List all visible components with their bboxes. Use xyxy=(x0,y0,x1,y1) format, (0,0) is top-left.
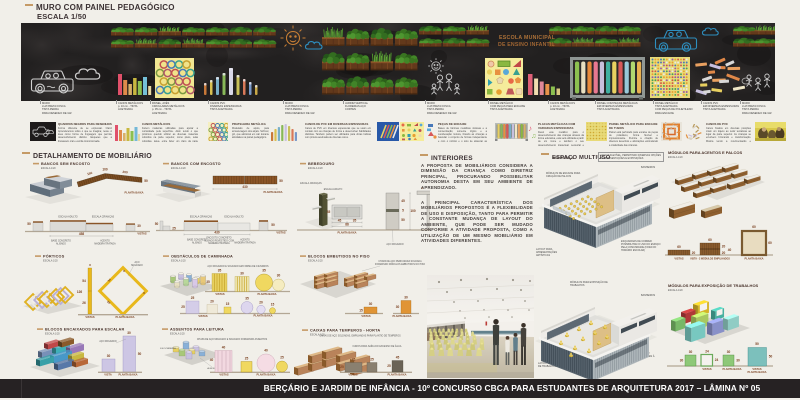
svg-text:45: 45 xyxy=(396,356,400,360)
svg-text:PLANTA BAIXA: PLANTA BAIXA xyxy=(387,373,406,377)
svg-text:45: 45 xyxy=(338,218,342,222)
svg-text:PLANTA BAIXA: PLANTA BAIXA xyxy=(257,292,276,296)
svg-text:AÇO MOLDADO E SOLDADO EM FORMA: AÇO MOLDADO E SOLDADO EM FORMA DE CILIND… xyxy=(207,265,269,268)
svg-text:20: 20 xyxy=(692,251,696,255)
svg-text:PLANTA BAIXA: PLANTA BAIXA xyxy=(337,231,356,235)
svg-text:FORMANDO MÓDULOS EMBUTIDOS NO: FORMANDO MÓDULOS EMBUTIDOS NO PISO xyxy=(375,263,425,266)
svg-text:54: 54 xyxy=(82,279,86,283)
svg-text:50: 50 xyxy=(138,352,142,356)
svg-text:126: 126 xyxy=(77,290,83,294)
svg-text:25: 25 xyxy=(181,305,185,309)
svg-text:ESCALA 1/20: ESCALA 1/20 xyxy=(171,167,186,170)
svg-text:26: 26 xyxy=(82,301,86,305)
svg-text:CAIXAS DE AÇO SOLDADAS, EMPILH: CAIXAS DE AÇO SOLDADAS, EMPILHADAS PARA … xyxy=(319,335,401,338)
svg-text:OBSTÁCULOS DE CAMINHADA: OBSTÁCULOS DE CAMINHADA xyxy=(171,254,233,259)
svg-text:25: 25 xyxy=(280,356,284,360)
svg-text:♪: ♪ xyxy=(528,124,532,133)
svg-text:ALISADO: ALISADO xyxy=(56,242,66,245)
svg-text:30: 30 xyxy=(127,331,131,335)
svg-text:MADEIRA TRATADA: MADEIRA TRATADA xyxy=(94,242,116,245)
svg-text:25: 25 xyxy=(191,296,195,300)
svg-text:VISTAS: VISTAS xyxy=(674,257,683,261)
svg-text:40: 40 xyxy=(210,358,214,362)
svg-text:35: 35 xyxy=(245,297,249,301)
svg-text:CHAPA DE AÇO MOLDADO E SOLDADO: CHAPA DE AÇO MOLDADO E SOLDADO FORMANDO … xyxy=(197,338,268,341)
svg-text:30: 30 xyxy=(107,354,111,358)
svg-text:BLOCOS ENCAIXADOS PARA ESCALAR: BLOCOS ENCAIXADOS PARA ESCALAR xyxy=(45,328,124,332)
svg-text:50: 50 xyxy=(27,222,31,226)
svg-text:PLANTA BAIXA: PLANTA BAIXA xyxy=(253,314,272,318)
svg-text:50: 50 xyxy=(401,218,405,222)
svg-text:430: 430 xyxy=(242,185,248,189)
svg-text:ESCALA ADULTO: ESCALA ADULTO xyxy=(324,188,343,191)
svg-text:26: 26 xyxy=(106,300,111,305)
svg-text:40: 40 xyxy=(264,349,268,353)
svg-text:30: 30 xyxy=(396,305,400,309)
svg-text:ESCALA 1/20: ESCALA 1/20 xyxy=(41,167,56,170)
svg-text:AÇO: AÇO xyxy=(135,261,140,264)
svg-text:VISTAS: VISTAS xyxy=(219,373,228,377)
svg-text:VISTAS: VISTAS xyxy=(276,231,285,235)
svg-text:ESCALA ADULTO: ESCALA ADULTO xyxy=(224,216,243,219)
svg-text:ESCALA 1/20: ESCALA 1/20 xyxy=(170,333,185,336)
svg-text:ESCALA 1/20: ESCALA 1/20 xyxy=(45,333,60,336)
svg-text:30: 30 xyxy=(680,359,684,363)
svg-text:20: 20 xyxy=(722,245,726,249)
svg-text:ESCALA CRIANÇAS: ESCALA CRIANÇAS xyxy=(190,216,213,219)
svg-text:ACENTO: ACENTO xyxy=(240,239,250,242)
svg-text:88: 88 xyxy=(345,222,349,226)
svg-text:♫: ♫ xyxy=(531,133,536,139)
svg-text:CHAPA DE AÇO PERFURADA SOLDADA: CHAPA DE AÇO PERFURADA SOLDADA xyxy=(378,260,422,263)
svg-text:ACENTO: ACENTO xyxy=(100,240,110,243)
svg-text:PLANTA BAIXA: PLANTA BAIXA xyxy=(722,367,741,371)
svg-text:25: 25 xyxy=(387,364,391,368)
svg-text:ESCALA CRIANÇAS: ESCALA CRIANÇAS xyxy=(300,182,322,185)
svg-text:24: 24 xyxy=(715,358,719,362)
svg-text:100: 100 xyxy=(102,168,108,172)
svg-text:50: 50 xyxy=(769,355,773,359)
svg-text:50: 50 xyxy=(755,342,759,346)
svg-text:30: 30 xyxy=(369,302,373,306)
svg-text:50: 50 xyxy=(271,223,275,227)
svg-text:ASSENTOS PARA LEITURA: ASSENTOS PARA LEITURA xyxy=(170,328,224,332)
svg-text:CAIXAS PARA TEMPEROS - HORTA: CAIXAS PARA TEMPEROS - HORTA xyxy=(310,329,380,333)
svg-text:25: 25 xyxy=(340,365,344,369)
svg-text:PLANTA BAIXA: PLANTA BAIXA xyxy=(392,314,411,318)
svg-text:MADEIRA TRATADA: MADEIRA TRATADA xyxy=(208,242,230,245)
svg-text:ALISADO: ALISADO xyxy=(192,241,202,244)
svg-text:VISTAS: VISTAS xyxy=(137,232,146,236)
svg-text:5: 5 xyxy=(402,209,404,213)
svg-text:ESCUTANEIRA: ESCUTANEIRA xyxy=(160,347,176,350)
svg-text:15: 15 xyxy=(359,309,363,313)
svg-text:50: 50 xyxy=(144,179,148,183)
svg-text:200: 200 xyxy=(122,170,128,175)
svg-text:45: 45 xyxy=(352,358,356,362)
svg-text:30: 30 xyxy=(727,350,731,354)
svg-text:25: 25 xyxy=(370,358,374,362)
svg-text:BANCOS COM ENCOSTO: BANCOS COM ENCOSTO xyxy=(171,162,221,166)
svg-text:60: 60 xyxy=(677,245,681,249)
svg-text:VISTAS: VISTAS xyxy=(198,314,207,318)
svg-text:BASE CONCRETO: BASE CONCRETO xyxy=(51,240,71,243)
svg-text:VISTAS: VISTAS xyxy=(702,367,711,371)
svg-text:30: 30 xyxy=(137,224,141,228)
svg-text:40: 40 xyxy=(728,248,732,252)
svg-text:ALISADO REVESTIDO COM: ALISADO REVESTIDO COM xyxy=(204,239,234,242)
svg-text:ESCALA ADULTO: ESCALA ADULTO xyxy=(58,216,77,219)
svg-text:30: 30 xyxy=(277,274,281,278)
svg-text:35: 35 xyxy=(353,218,357,222)
svg-text:AÇO MOLDADO: AÇO MOLDADO xyxy=(99,340,116,343)
svg-text:35: 35 xyxy=(262,269,266,273)
svg-text:MADEIRA TRATADA: MADEIRA TRATADA xyxy=(234,241,256,244)
svg-text:100: 100 xyxy=(410,209,416,213)
svg-text:50: 50 xyxy=(279,179,283,183)
svg-text:ENCOSTO CONCRETO: ENCOSTO CONCRETO xyxy=(206,238,231,240)
svg-text:25: 25 xyxy=(245,357,249,361)
svg-text:VISTAS: VISTAS xyxy=(85,315,94,319)
svg-text:35: 35 xyxy=(327,210,331,214)
svg-text:30: 30 xyxy=(404,296,408,300)
svg-text:ESCOLA MUNICIPAL: ESCOLA MUNICIPAL xyxy=(499,35,556,41)
svg-text:24: 24 xyxy=(705,350,709,354)
svg-text:ESCALA CRIANÇAS: ESCALA CRIANÇAS xyxy=(92,216,115,219)
svg-text:PLANTA BAIXA: PLANTA BAIXA xyxy=(263,190,282,194)
svg-text:ESCALA 1/20: ESCALA 1/20 xyxy=(171,260,186,263)
svg-text:ESCALA 1/20: ESCALA 1/20 xyxy=(308,167,323,170)
svg-text:VISTA - 2 MÓDULOS EMPILHADOS: VISTA - 2 MÓDULOS EMPILHADOS xyxy=(690,258,730,261)
svg-text:PLANTA BAIXA: PLANTA BAIXA xyxy=(124,191,143,195)
svg-text:AÇO MOLDADO: AÇO MOLDADO xyxy=(386,243,403,246)
svg-text:PÓRTICOS: PÓRTICOS xyxy=(43,254,65,259)
svg-text:8: 8 xyxy=(89,263,91,267)
svg-text:VISTAS: VISTAS xyxy=(361,314,370,318)
svg-text:30: 30 xyxy=(689,350,693,354)
svg-text:60: 60 xyxy=(752,225,756,229)
svg-text:VISTAS: VISTAS xyxy=(215,292,224,296)
svg-text:458: 458 xyxy=(79,232,85,236)
svg-text:MOLDADO: MOLDADO xyxy=(131,264,143,267)
svg-text:50: 50 xyxy=(155,222,159,226)
svg-text:VISTA: VISTA xyxy=(104,373,112,377)
svg-text:ESCALA 1/20: ESCALA 1/20 xyxy=(43,260,58,263)
svg-text:430: 430 xyxy=(214,230,220,234)
svg-text:VISTAS: VISTAS xyxy=(348,373,357,377)
svg-text:45: 45 xyxy=(401,199,405,203)
svg-text:PLANTA BAIXA: PLANTA BAIXA xyxy=(118,373,137,377)
svg-text:PLANTA BAIXA: PLANTA BAIXA xyxy=(256,373,275,377)
svg-text:PLANTA BAIXA: PLANTA BAIXA xyxy=(115,315,134,319)
svg-text:35: 35 xyxy=(206,280,210,284)
svg-text:60: 60 xyxy=(768,241,772,245)
svg-text:15: 15 xyxy=(226,302,230,306)
svg-text:15: 15 xyxy=(271,303,275,307)
svg-text:BEBEDOURO: BEBEDOURO xyxy=(308,162,334,166)
svg-text:FUROS PARA SAÍDA DO EXCESSO DE: FUROS PARA SAÍDA DO EXCESSO DE ÁGUA xyxy=(353,345,402,348)
svg-text:60: 60 xyxy=(708,238,712,242)
svg-text:30: 30 xyxy=(240,272,244,276)
svg-text:PLANTA BAIXA: PLANTA BAIXA xyxy=(744,257,763,261)
svg-text:40: 40 xyxy=(222,346,226,350)
svg-text:35: 35 xyxy=(218,269,222,273)
svg-text:ESCALA 1/20: ESCALA 1/20 xyxy=(308,260,323,263)
svg-text:20: 20 xyxy=(722,251,726,255)
svg-text:25: 25 xyxy=(172,227,176,231)
svg-text:BLOCOS EMBUTIDOS NO PISO: BLOCOS EMBUTIDOS NO PISO xyxy=(308,255,370,259)
svg-text:PLANTA BAIXA: PLANTA BAIXA xyxy=(747,370,766,374)
svg-text:BANCOS SEM ENCOSTO: BANCOS SEM ENCOSTO xyxy=(41,162,90,166)
svg-text:DE ENSINO INFANTIL: DE ENSINO INFANTIL xyxy=(498,42,556,48)
svg-text:20: 20 xyxy=(210,300,214,304)
svg-text:150: 150 xyxy=(87,171,93,176)
svg-text:30: 30 xyxy=(736,359,740,363)
svg-text:20: 20 xyxy=(259,301,263,305)
